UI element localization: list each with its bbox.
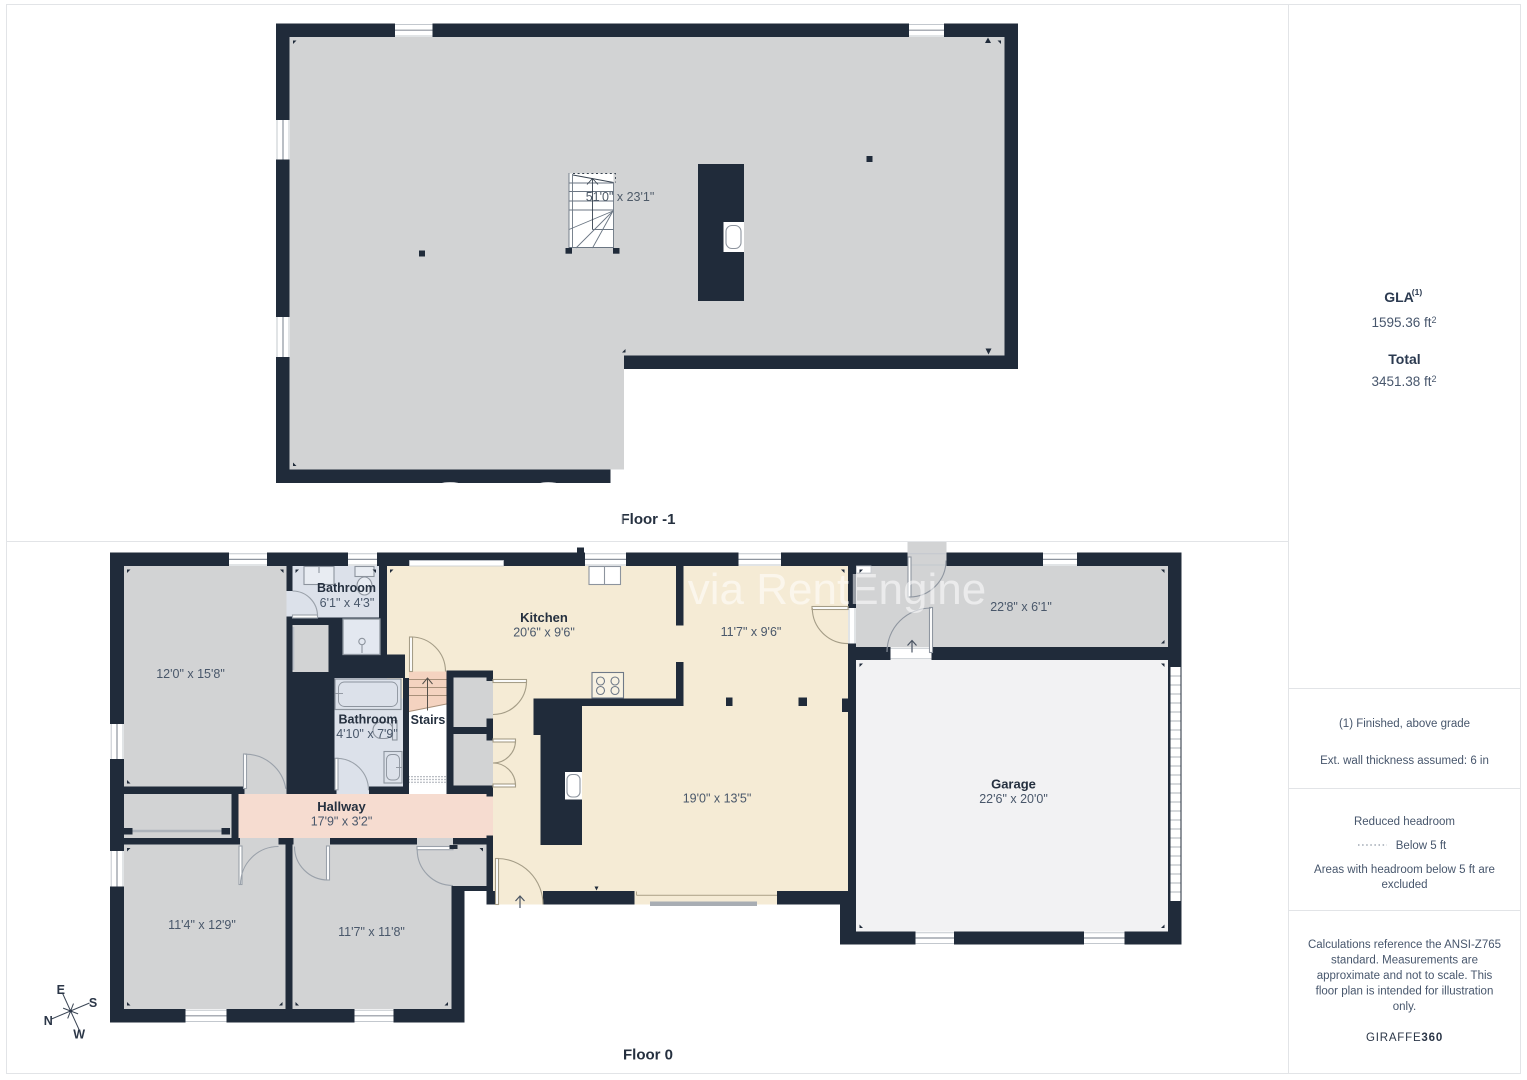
svg-text:Bathroom: Bathroom [317, 581, 376, 595]
svg-text:GLA: GLA [1384, 289, 1414, 305]
svg-text:Kitchen: Kitchen [520, 610, 568, 625]
svg-text:Areas with headroom below 5 ft: Areas with headroom below 5 ft are [1314, 864, 1495, 876]
svg-text:Floor -1: Floor -1 [621, 511, 676, 528]
svg-text:N: N [44, 1014, 53, 1028]
svg-text:Stairs: Stairs [411, 713, 446, 727]
svg-text:Ext. wall thickness assumed: 6: Ext. wall thickness assumed: 6 in [1320, 755, 1489, 767]
svg-text:3 ADDINGTON: 3 ADDINGTON [142, 469, 629, 549]
svg-text:(1) Finished, above grade: (1) Finished, above grade [1339, 718, 1470, 730]
svg-text:only.: only. [1393, 1001, 1416, 1013]
svg-text:20'6" x 9'6": 20'6" x 9'6" [513, 626, 575, 640]
svg-text:19'0" x 13'5": 19'0" x 13'5" [683, 792, 752, 806]
svg-text:S: S [89, 996, 97, 1010]
svg-text:11'4" x 12'9": 11'4" x 12'9" [168, 918, 236, 932]
svg-text:E: E [57, 983, 65, 997]
svg-text:3451.38 ft2: 3451.38 ft2 [1371, 374, 1436, 389]
svg-text:Bathroom: Bathroom [338, 713, 397, 727]
svg-text:Reduced headroom: Reduced headroom [1354, 816, 1455, 828]
svg-text:approximate and not to scale.: approximate and not to scale. This [1317, 970, 1493, 982]
svg-text:Floor 0: Floor 0 [623, 1047, 673, 1064]
svg-text:(1): (1) [1412, 287, 1423, 297]
svg-text:22'6" x 20'0": 22'6" x 20'0" [979, 792, 1048, 806]
svg-text:excluded: excluded [1381, 879, 1427, 891]
svg-text:RANDOLPH: RANDOLPH [810, 469, 1210, 549]
svg-text:W: W [73, 1028, 85, 1042]
svg-text:Calculations reference the ANS: Calculations reference the ANSI-Z765 [1308, 939, 1501, 951]
svg-text:4'10" x 7'9": 4'10" x 7'9" [336, 727, 398, 741]
svg-text:11'7" x 9'6": 11'7" x 9'6" [721, 625, 782, 639]
svg-text:GIRAFFE360: GIRAFFE360 [1366, 1032, 1443, 1044]
svg-text:floor plan is intended for ill: floor plan is intended for illustration [1316, 986, 1494, 998]
svg-text:standard. Measurements are: standard. Measurements are [1331, 955, 1478, 967]
svg-text:Hallway: Hallway [317, 799, 366, 814]
svg-text:Garage: Garage [991, 777, 1036, 792]
svg-text:1595.36 ft2: 1595.36 ft2 [1371, 315, 1436, 330]
svg-text:17'9" x 3'2": 17'9" x 3'2" [311, 815, 373, 829]
svg-text:6'1" x 4'3": 6'1" x 4'3" [320, 596, 375, 610]
svg-text:12'0" x 15'8": 12'0" x 15'8" [156, 667, 225, 681]
svg-text:22'8" x 6'1": 22'8" x 6'1" [990, 600, 1052, 614]
svg-text:11'7" x 11'8": 11'7" x 11'8" [338, 925, 405, 939]
svg-text:via RentEngine: via RentEngine [688, 565, 986, 614]
svg-text:Below 5 ft: Below 5 ft [1396, 840, 1447, 852]
svg-text:Total: Total [1388, 351, 1420, 367]
svg-text:51'0" x 23'1": 51'0" x 23'1" [586, 190, 655, 204]
